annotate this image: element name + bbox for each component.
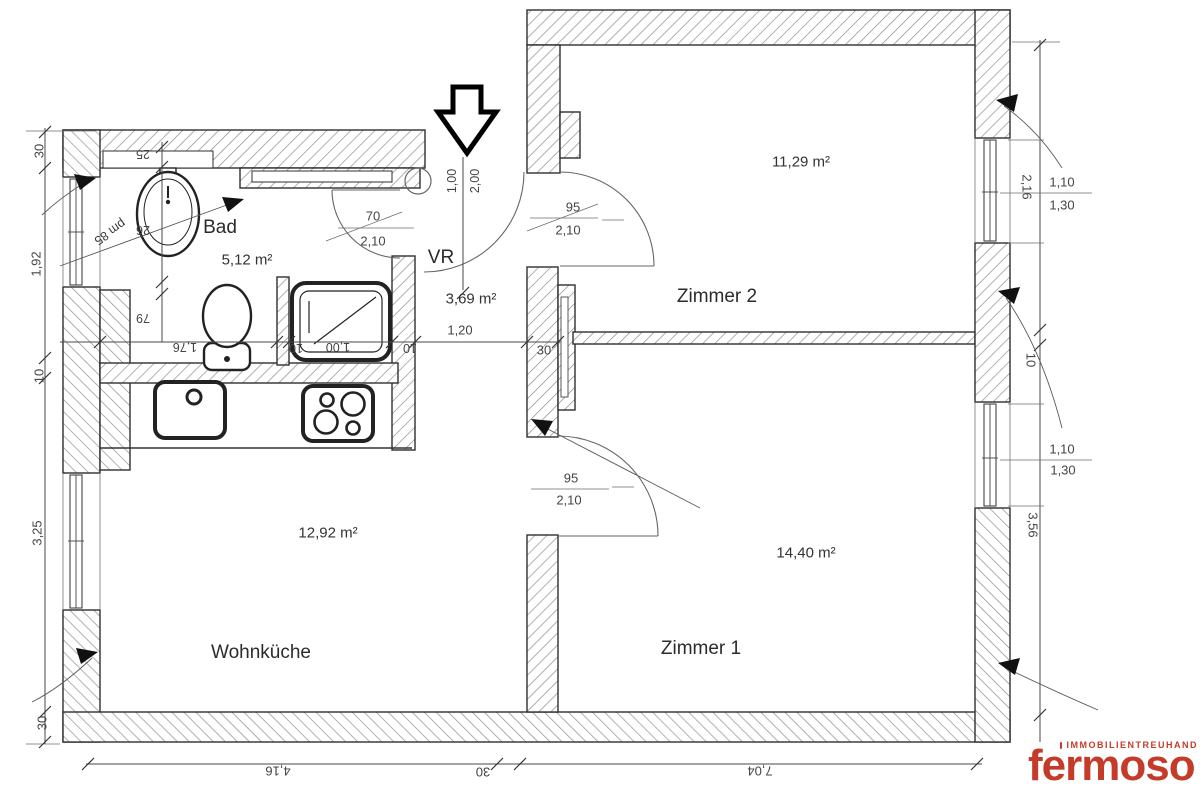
dim-left-seg1: 1,92 <box>29 251 44 276</box>
dim-left-seg2: 3,25 <box>30 520 45 545</box>
dim-bad-h1: 1,76 <box>173 340 197 354</box>
wall-wohnkueche-zimmer1 <box>527 535 558 712</box>
floor-plan-drawing <box>0 0 1200 797</box>
wall-tub-niche <box>277 277 289 365</box>
wall-vr-zimmer2-step <box>560 112 580 158</box>
wall-left-b <box>63 287 100 473</box>
window-zimmer1-right <box>975 402 1010 508</box>
dim-bottom-seg2: 7,04 <box>747 764 772 779</box>
window-wohnkueche-left <box>63 473 100 610</box>
dim-bad-v2: 26 <box>136 223 150 237</box>
dim-vr-wall: 30 <box>537 343 551 358</box>
dim-left-wall-bottom: 30 <box>35 716 50 730</box>
room-label-wohnkueche: Wohnküche <box>211 642 311 664</box>
wall-right-a <box>975 10 1010 138</box>
room-label-zimmer2: Zimmer 2 <box>677 286 757 308</box>
fermoso-logo: IMMOBILIENTREUHAND fermoso <box>1028 740 1198 784</box>
area-label-bad: 5,12 m² <box>222 252 273 269</box>
dim-bad-v3: 79 <box>136 311 150 325</box>
dim-bad-v1: 25 <box>136 147 150 161</box>
dim-left-wall-mid: 10 <box>32 369 47 383</box>
toilet <box>203 285 251 370</box>
dim-right-win1-height: 1,10 <box>1049 175 1074 190</box>
kitchen-sink <box>155 382 225 438</box>
dim-left-wall-top: 30 <box>32 144 47 158</box>
room-label-zimmer1: Zimmer 1 <box>661 638 741 660</box>
area-label-zimmer1: 14,40 m² <box>776 545 835 562</box>
dim-right-wall-mid: 10 <box>1024 353 1039 367</box>
dim-door-zimmer2-height: 2,10 <box>555 223 580 238</box>
door-zimmer2 <box>560 172 654 266</box>
room-label-bad: Bad <box>203 217 237 239</box>
door-zimmer1 <box>558 436 658 536</box>
room-label-vr: VR <box>428 247 454 269</box>
area-label-zimmer2: 11,29 m² <box>772 154 830 171</box>
dim-bad-h3: 1,00 <box>326 340 350 354</box>
dim-door-zimmer1-width: 95 <box>564 471 578 486</box>
cooktop <box>303 386 373 441</box>
dim-right-seg2: 3,56 <box>1026 512 1041 537</box>
wall-top-right <box>527 10 1010 45</box>
window-zimmer2-right <box>975 138 1010 243</box>
dim-bottom-wall: 30 <box>476 765 490 780</box>
dim-entrance-width: 1,00 <box>445 169 459 193</box>
washbasin-recess <box>103 151 213 168</box>
dim-entrance-height: 2,00 <box>468 169 482 193</box>
dim-vr-width: 1,20 <box>447 323 472 338</box>
logo-brand: fermoso <box>1028 748 1198 784</box>
wall-right-b <box>975 243 1010 402</box>
leader-arrow-icon <box>222 197 244 212</box>
dim-right-win2-height: 1,10 <box>1049 442 1074 457</box>
wall-niche <box>252 171 392 182</box>
area-label-wohnkueche: 12,92 m² <box>298 525 357 542</box>
walls <box>63 10 1010 742</box>
floor-plan: Bad 5,12 m² VR 3,69 m² Zimmer 2 11,29 m²… <box>0 0 1200 797</box>
entrance-arrow-icon <box>438 87 496 153</box>
dim-right-win1-opening: 1,30 <box>1049 198 1074 213</box>
dim-bad-h4: 10 <box>403 341 417 355</box>
dim-right-seg1: 2,16 <box>1020 174 1035 199</box>
wall-left-a <box>63 130 100 177</box>
area-label-vr: 3,69 m² <box>446 291 497 308</box>
dim-bottom-seg1: 4,16 <box>265 764 290 779</box>
dim-door-zimmer1-height: 2,10 <box>556 493 581 508</box>
wall-bottom <box>63 712 1010 742</box>
dim-door-zimmer2-width: 95 <box>566 200 580 215</box>
dim-door-bad-height: 2,10 <box>360 234 385 249</box>
dim-door-bad-width: 70 <box>366 209 380 224</box>
wall-vr-zimmer2 <box>527 45 560 173</box>
washbasin <box>137 168 199 256</box>
wall-right-c <box>975 508 1010 742</box>
dim-right-win2-opening: 1,30 <box>1050 463 1075 478</box>
wall-zimmer1-zimmer2 <box>573 332 975 344</box>
dim-bad-h2: 10 <box>289 341 303 355</box>
pillar-slot <box>561 297 568 397</box>
